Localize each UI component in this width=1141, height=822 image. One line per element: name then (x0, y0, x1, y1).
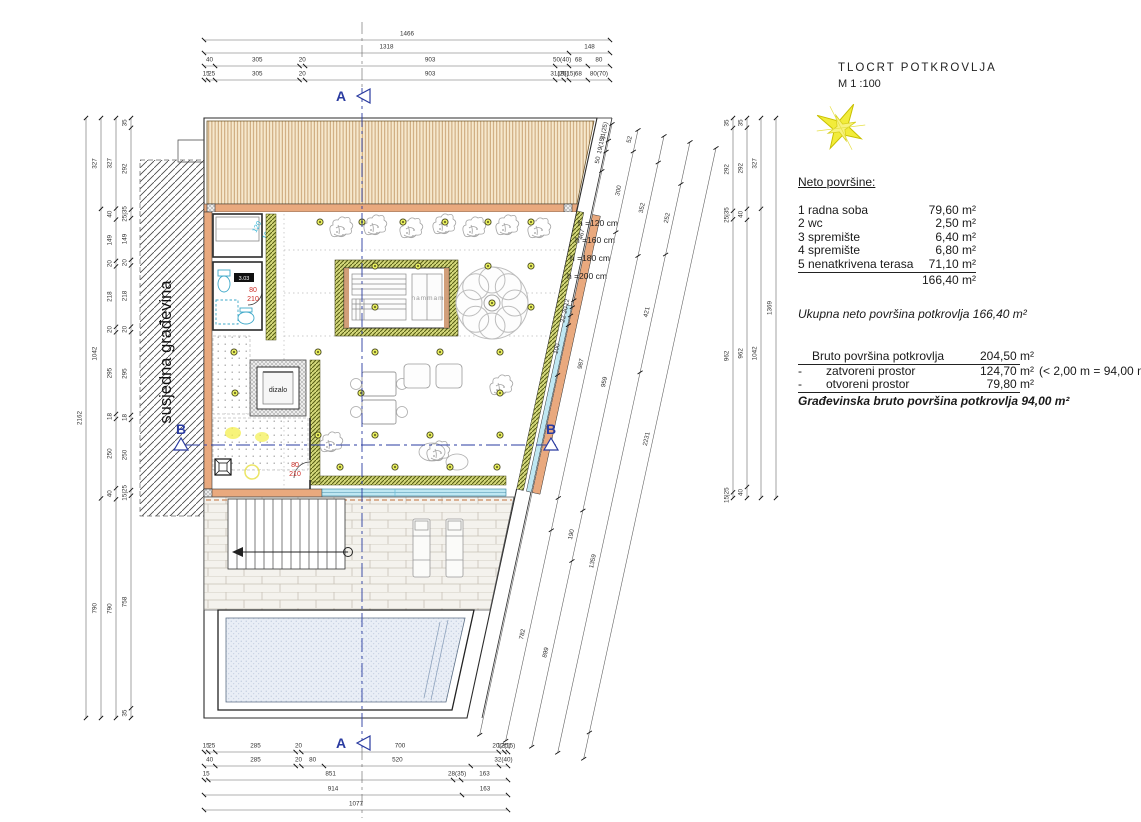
area-value: 6,80 m² (935, 244, 976, 258)
area-value: 2,50 m² (935, 217, 976, 231)
height-label: h =120 cm (578, 218, 618, 228)
dim-label: 68 (575, 57, 583, 64)
dim-label: 218 (122, 290, 129, 301)
dim-label: 700 (395, 743, 406, 750)
wall-post (564, 204, 572, 212)
elevator-label: dizalo (269, 387, 287, 394)
area-name: 5 nenatkrivena terasa (798, 258, 929, 272)
dimension-chain: 3529225|3596215|25 (724, 116, 736, 503)
dim-label: 80 (595, 57, 603, 64)
area-value: 124,70 m² (951, 365, 1034, 379)
dim-label: 20 (295, 757, 303, 764)
dim-label: 2162 (77, 411, 84, 426)
area-value: 71,10 m² (929, 258, 976, 272)
dim-label: 300 (614, 184, 623, 196)
area-value: 79,80 m² (951, 378, 1034, 392)
dim-label: 20 (122, 259, 129, 267)
dimension-chain: 352924096240 (738, 116, 750, 500)
dim-label: 25 (208, 743, 216, 750)
hammam-label: hammam (411, 295, 444, 302)
neighbor-building: susjedna građevina (140, 160, 204, 516)
light-dot (528, 219, 534, 225)
title-block: TLOCRT POTKROVLJA M 1 :100 (838, 62, 997, 91)
dim-label: 327 (92, 158, 99, 169)
dim-label: 28(35) (448, 771, 466, 778)
dim-label: 15|25 (122, 485, 129, 501)
area-name: 3 spremište (798, 231, 935, 245)
light-dot (528, 263, 534, 269)
light-dot (315, 432, 321, 438)
green-wall (266, 214, 276, 340)
light-dot (485, 263, 491, 269)
light-dot (489, 300, 495, 306)
dim-label: 292 (724, 164, 731, 175)
floor-drain (215, 459, 231, 475)
dim-label: 149 (122, 233, 129, 244)
dim-label: 1359 (588, 553, 598, 569)
section-arrow (357, 89, 370, 103)
dim-label: 962 (724, 350, 731, 361)
lower-terrace (204, 497, 514, 610)
dim-label: 20 (107, 326, 114, 334)
net-area-summary: Ukupna neto površina potkrovlja 166,40 m… (798, 308, 1138, 322)
dim-label: 790 (107, 603, 114, 614)
light-dot (497, 349, 503, 355)
light-dot (497, 390, 503, 396)
dim-label: 285 (250, 743, 261, 750)
dimension-chain: 15253052090331(25)19(15)6880(70) (202, 71, 612, 83)
area-total: 166,40 m² (922, 274, 976, 288)
dim-label: 18 (107, 412, 114, 420)
dim-label: 40 (107, 210, 114, 218)
light-dot (497, 432, 503, 438)
section-marker-a-bottom: A (336, 735, 346, 751)
dim-label: 987 (577, 357, 586, 369)
dim-label: 50 (594, 155, 602, 164)
light-dot (372, 304, 378, 310)
light-dot (442, 219, 448, 225)
dim-label: 305 (252, 71, 263, 78)
area-value: 79,60 m² (929, 204, 976, 218)
green-parapet-bottom (310, 476, 506, 485)
stair-hall (213, 336, 250, 414)
area-value: 6,40 m² (935, 231, 976, 245)
light-dot (427, 432, 433, 438)
pool (218, 610, 474, 710)
dim-label: 520 (392, 757, 403, 764)
dim-label: 52 (626, 135, 634, 144)
dim-label: 20 (295, 743, 303, 750)
area-row: - zatvoreni prostor 124,70 m² (< 2,00 m … (798, 365, 1020, 379)
dim-label: 148 (584, 44, 595, 51)
dim-label: 40 (206, 57, 214, 64)
light-dot (358, 390, 364, 396)
dimension-chain: 1077 (202, 801, 510, 813)
door1-height: 210 (247, 296, 259, 303)
light-dot (528, 304, 534, 310)
area-row: 2 wc 2,50 m² (798, 217, 976, 231)
area-row: 1 radna soba 79,60 m² (798, 204, 976, 218)
gross-areas-table: Bruto površina potkrovlja 204,50 m² - za… (798, 350, 1020, 393)
dim-label: 18 (122, 413, 129, 421)
stairs-down (228, 499, 353, 569)
dim-label: 1042 (92, 346, 99, 361)
dim-label: 292 (122, 163, 129, 174)
area-row: - otvoreni prostor 79,80 m² (798, 378, 1020, 393)
roof-eave-wall (204, 204, 578, 212)
dimension-chain: 1369 (767, 116, 779, 500)
dim-label: 35 (122, 119, 129, 127)
area-name: otvoreni prostor (826, 378, 951, 392)
dim-label: 252 (663, 212, 672, 224)
area-name: zatvoreni prostor (826, 365, 951, 379)
door2-height: 210 (289, 471, 301, 478)
dimension-chain: 2162 (77, 116, 89, 720)
dim-label: 32(40) (494, 757, 512, 764)
light-glow (225, 427, 241, 439)
dim-label: 285 (250, 757, 261, 764)
light-dot (447, 464, 453, 470)
area-row: 5 nenatkrivena terasa 71,10 m² (798, 258, 976, 273)
room-storage-1 (213, 214, 262, 257)
area-name: 2 wc (798, 217, 935, 231)
dim-label: 352 (638, 202, 647, 214)
plot-notch (178, 140, 204, 162)
dim-label: 15 (203, 771, 211, 778)
neighbor-label: susjedna građevina (157, 280, 175, 424)
section-arrow (357, 736, 370, 750)
drawing-title: TLOCRT POTKROVLJA (838, 62, 997, 76)
section-marker-b-right: B (546, 421, 556, 437)
section-marker-a-top: A (336, 88, 346, 104)
dim-label: 80(70) (590, 71, 608, 78)
dim-label: 12 (563, 298, 571, 307)
hammam-room: hammam (335, 260, 458, 336)
dimension-chain: 914163 (202, 786, 510, 798)
wall-post (204, 489, 212, 497)
dim-label: 903 (425, 71, 436, 78)
dim-label: 40 (738, 210, 745, 218)
dimension-chain: 40285208052032(40) (202, 757, 513, 769)
area-value: 204,50 m² (951, 350, 1034, 364)
net-areas-table: Neto površine: 1 radna soba 79,60 m² 2 w… (798, 176, 976, 287)
height-label: h =200 cm (567, 271, 607, 281)
dim-label: 20 (299, 71, 307, 78)
wall-post (207, 204, 215, 212)
gross-area-final: Građevinska bruto površina potkrovlja 94… (798, 395, 1138, 409)
area-name: Bruto površina potkrovlja (812, 350, 951, 364)
dimension-chain: 3274014920218202951825040790 (107, 116, 119, 720)
light-dot (372, 349, 378, 355)
dim-label: 149 (107, 234, 114, 245)
light-dot (437, 349, 443, 355)
dim-label: 1466 (400, 31, 415, 38)
dimension-chain: 3271042790 (92, 116, 104, 720)
dim-label: 20 (107, 260, 114, 268)
dim-label: 19(15) (557, 71, 575, 78)
dim-label: 25|35 (122, 206, 129, 222)
dim-label: 20 (299, 57, 307, 64)
dim-label: 962 (738, 348, 745, 359)
dim-label: 790 (92, 602, 99, 613)
area-row: 3 spremište 6,40 m² (798, 231, 976, 245)
dim-label: 250 (107, 448, 114, 459)
light-dot (485, 219, 491, 225)
dim-label: 35 (724, 119, 731, 127)
dim-label: 295 (122, 368, 129, 379)
dim-label: 782 (518, 628, 527, 640)
roof (204, 121, 594, 212)
elevator: dizalo (250, 360, 306, 416)
dim-label: 914 (328, 786, 339, 793)
dim-label: 40 (738, 488, 745, 496)
dim-label: 899 (541, 646, 550, 658)
light-dot (317, 219, 323, 225)
light-dot (372, 432, 378, 438)
light-dot (494, 464, 500, 470)
area-name: 4 spremište (798, 244, 935, 258)
dim-label: 218 (107, 291, 114, 302)
dim-label: 163 (480, 786, 491, 793)
dim-label: 15|25 (724, 487, 731, 503)
light-dot (392, 464, 398, 470)
dim-label: 305 (252, 57, 263, 64)
dimension-chain: 3271042 (752, 116, 764, 500)
light-dot (372, 263, 378, 269)
dimension-chain: 1585128(35)163 (202, 771, 510, 783)
dim-label: 2231 (642, 431, 652, 447)
dim-label: 292 (738, 162, 745, 173)
dim-label: 25 (208, 71, 216, 78)
dim-label: 327 (752, 158, 759, 169)
light-dot (232, 390, 238, 396)
dim-label: 40 (107, 490, 114, 498)
dim-label: 163 (479, 771, 490, 778)
dim-label: 1369 (767, 301, 774, 316)
section-marker-b-left: B (176, 421, 186, 437)
dim-label: 250 (122, 449, 129, 460)
dim-label: 851 (325, 771, 336, 778)
room-number: 3.03 (239, 276, 250, 282)
light-dot (315, 349, 321, 355)
light-dot (231, 349, 237, 355)
dim-label: 1077 (349, 801, 364, 808)
dim-label: 40 (206, 757, 214, 764)
area-name: 1 radna soba (798, 204, 929, 218)
drawing-sheet: susjedna građevina (0, 0, 1141, 822)
area-row: 4 spremište 6,80 m² (798, 244, 976, 258)
net-areas-heading: Neto površine: (798, 176, 976, 190)
area-note: (< 2,00 m = 94,00 m²) (1034, 365, 1141, 379)
drawing-scale: M 1 :100 (838, 78, 997, 92)
dim-label: 1042 (752, 346, 759, 361)
dim-label: 35 (738, 119, 745, 127)
dim-label: 35 (122, 709, 129, 717)
dimension-chain: 403052090350(40)6880 (202, 57, 612, 69)
dim-label: 68 (575, 71, 583, 78)
light-glow (255, 432, 269, 442)
green-wall (310, 360, 320, 482)
dim-label: 25|35 (724, 207, 731, 223)
dim-label: 190 (567, 528, 576, 540)
dim-label: 20 (122, 325, 129, 333)
floor-plan-svg: susjedna građevina (0, 0, 1141, 822)
dimension-chain: 3529225|3514920218202951825015|2575835 (122, 116, 134, 720)
north-star-icon (806, 91, 874, 159)
area-row: Bruto površina potkrovlja 204,50 m² (798, 350, 1020, 365)
dim-label: 50(40) (553, 57, 571, 64)
dim-label: 903 (425, 57, 436, 64)
dim-label: 758 (122, 596, 129, 607)
door2-width: 80 (291, 462, 299, 469)
area-total-row: 166,40 m² (798, 274, 976, 288)
dim-label: 327 (107, 158, 114, 169)
dim-label: 12(15) (497, 743, 515, 750)
dim-label: 1318 (379, 44, 394, 51)
left-perimeter-wall (204, 212, 212, 489)
light-dot (415, 263, 421, 269)
height-label: h =180 cm (570, 253, 610, 263)
dimension-chain: 1318148 (202, 44, 612, 56)
light-dot (337, 464, 343, 470)
dim-label: 959 (600, 376, 609, 388)
dimension-chain: 1466 (202, 31, 612, 43)
dim-label: 295 (107, 367, 114, 378)
door1-width: 80 (249, 287, 257, 294)
dim-label: 80 (309, 757, 317, 764)
dim-label: 421 (642, 306, 651, 318)
light-dot (400, 219, 406, 225)
